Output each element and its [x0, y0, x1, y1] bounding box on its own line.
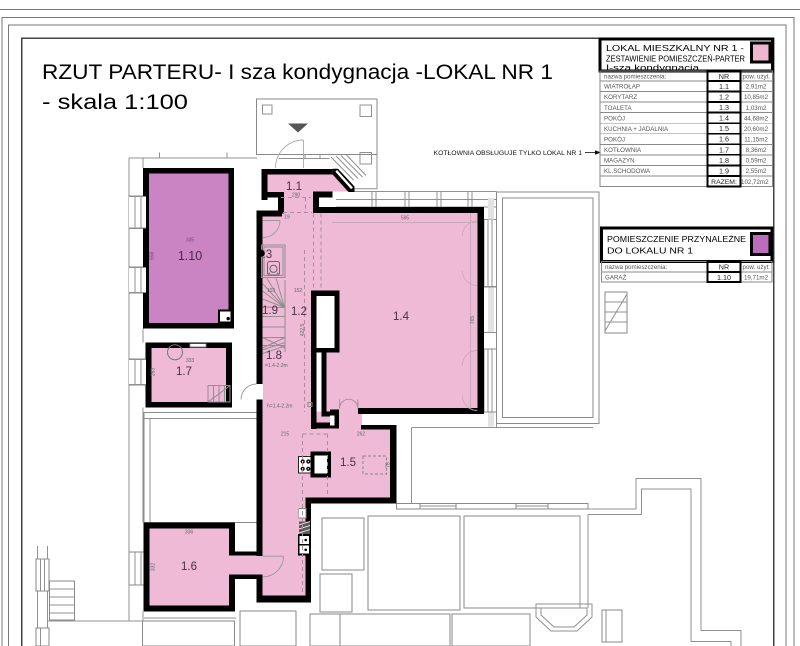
svg-text:422,5: 422,5 [300, 324, 306, 337]
svg-text:78: 78 [386, 462, 392, 468]
svg-text:215: 215 [281, 432, 290, 438]
svg-text:1.3: 1.3 [719, 103, 729, 112]
svg-text:2,91m2: 2,91m2 [746, 84, 767, 91]
svg-text:1,03m2: 1,03m2 [746, 105, 767, 112]
svg-text:1.9: 1.9 [262, 305, 278, 317]
svg-text:1.4: 1.4 [719, 114, 729, 123]
svg-text:POKÓJ: POKÓJ [604, 115, 625, 122]
svg-text:POMIESZCZENIE PRZYNALEŻNE: POMIESZCZENIE PRZYNALEŻNE [607, 234, 746, 244]
svg-text:1.8: 1.8 [266, 350, 282, 362]
svg-text:595: 595 [401, 216, 410, 222]
svg-text:TOALETA: TOALETA [604, 105, 632, 112]
svg-text:KOTŁOWNIA: KOTŁOWNIA [604, 147, 642, 154]
svg-text:2,55m2: 2,55m2 [746, 168, 767, 175]
svg-text:1.1: 1.1 [286, 181, 302, 193]
svg-text:POKÓJ: POKÓJ [604, 136, 625, 143]
svg-text:1.10: 1.10 [178, 249, 202, 263]
svg-text:DO LOKALU NR 1: DO LOKALU NR 1 [607, 246, 693, 256]
svg-text:WIATROŁAP: WIATROŁAP [604, 84, 640, 91]
svg-text:GARAŻ: GARAŻ [605, 275, 627, 282]
svg-text:nazwa pomieszczenia:: nazwa pomieszczenia: [604, 74, 667, 81]
svg-text:.3: .3 [263, 249, 273, 261]
svg-text:11,15m2: 11,15m2 [744, 136, 768, 143]
svg-text:RAZEM:: RAZEM: [711, 179, 737, 186]
svg-text:1.9: 1.9 [719, 166, 729, 175]
svg-text:10,85m2: 10,85m2 [744, 94, 769, 101]
svg-text:558: 558 [150, 252, 156, 261]
svg-text:290: 290 [292, 193, 301, 199]
svg-text:336: 336 [185, 530, 194, 536]
svg-text:1.2: 1.2 [719, 93, 729, 102]
svg-text:333: 333 [186, 358, 195, 364]
svg-text:332: 332 [151, 563, 157, 572]
svg-text:263: 263 [151, 368, 157, 377]
svg-text:pow. użyt.: pow. użyt. [743, 74, 771, 81]
svg-text:MAGAZYN: MAGAZYN [604, 158, 635, 165]
svg-text:1.8: 1.8 [719, 156, 729, 165]
svg-text:1.6: 1.6 [719, 135, 729, 144]
svg-text:KOTŁOWNIA OBSŁUGUJE TYLKO LOKA: KOTŁOWNIA OBSŁUGUJE TYLKO LOKAL NR 1 [434, 150, 583, 157]
svg-text:20,60m2: 20,60m2 [744, 126, 769, 133]
svg-text:1.2: 1.2 [291, 306, 307, 318]
svg-text:LOKAL MIESZKALNY NR 1 -: LOKAL MIESZKALNY NR 1 - [606, 43, 744, 53]
svg-text:KL.SCHODOWA: KL.SCHODOWA [604, 168, 651, 175]
svg-text:1.5: 1.5 [719, 124, 729, 133]
svg-text:1.4: 1.4 [393, 311, 410, 323]
svg-text:NR: NR [719, 72, 729, 81]
svg-text:KUCHNIA + JADALNIA: KUCHNIA + JADALNIA [604, 126, 669, 133]
svg-text:NR: NR [719, 262, 729, 271]
svg-text:pow. użyt:: pow. użyt: [743, 264, 771, 271]
svg-text:nazwa pomieszczenia:: nazwa pomieszczenia: [605, 264, 668, 271]
svg-text:0,59m2: 0,59m2 [746, 158, 767, 165]
svg-text:19,71m2: 19,71m2 [744, 275, 769, 282]
svg-text:1.1: 1.1 [719, 82, 729, 91]
svg-text:1.6: 1.6 [181, 561, 197, 573]
svg-text:8,36m2: 8,36m2 [746, 147, 767, 154]
svg-text:1.7: 1.7 [719, 145, 729, 154]
svg-text:44,68m2: 44,68m2 [744, 115, 769, 122]
svg-text:103: 103 [267, 288, 276, 294]
svg-text:262: 262 [357, 432, 366, 438]
svg-text:152: 152 [294, 288, 303, 294]
svg-text:19: 19 [284, 215, 290, 221]
svg-text:RZUT PARTERU- I sza kondygnacj: RZUT PARTERU- I sza kondygnacja -LOKAL N… [42, 60, 553, 84]
svg-text:335: 335 [186, 238, 195, 244]
svg-text:1.7: 1.7 [176, 366, 192, 378]
svg-text:KORYTARZ: KORYTARZ [604, 94, 637, 101]
svg-text:- skala 1:100: - skala 1:100 [42, 90, 188, 114]
svg-text:h=1.4-2.2m: h=1.4-2.2m [267, 404, 292, 410]
svg-text:102,72m2: 102,72m2 [741, 179, 769, 186]
svg-text:765: 765 [470, 316, 476, 325]
svg-text:1.5: 1.5 [340, 457, 356, 469]
svg-text:=1.4-2.2m: =1.4-2.2m [265, 363, 288, 369]
svg-text:1.10: 1.10 [717, 273, 731, 282]
